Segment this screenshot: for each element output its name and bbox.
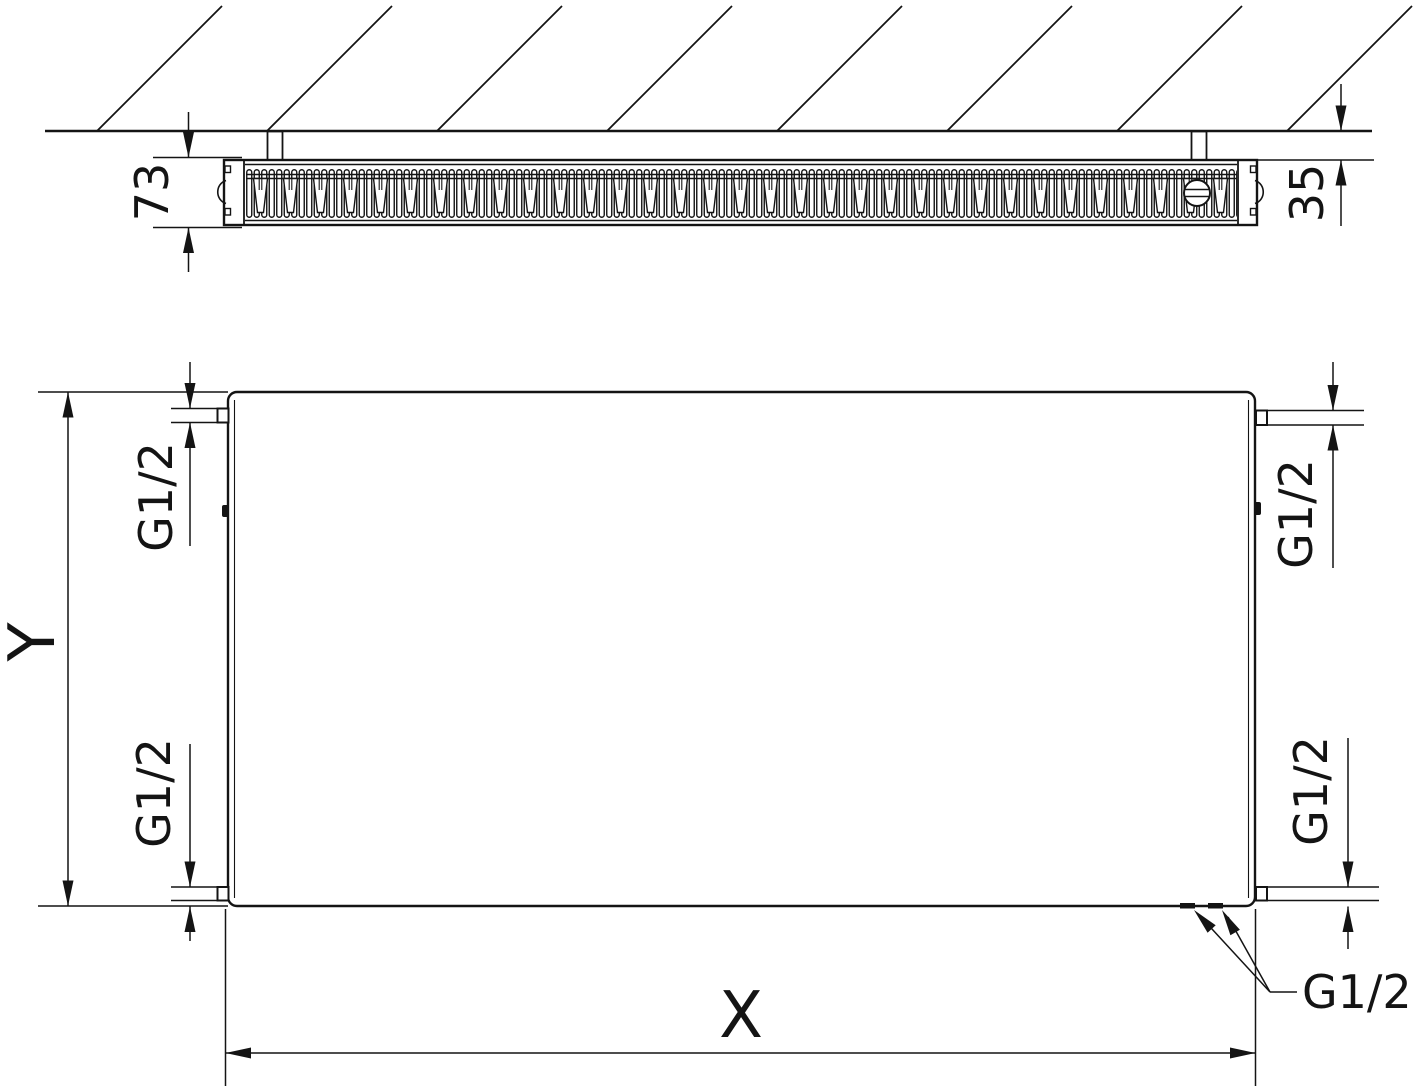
dimension-wall-distance-35: 35 [1258,84,1374,226]
thread-label-bottom-right: G1/2 [1284,736,1338,846]
dimension-thread-top-right: G1/2 [1269,362,1339,569]
mounting-bracket-left [268,132,283,162]
leader-thread-bottom: G1/2 [1180,903,1412,1019]
height-label: Y [0,622,70,663]
pipe-stub-bottom-right [1256,887,1267,901]
pipe-stub-top-left [218,409,229,423]
thread-label-top-left: G1/2 [129,442,183,552]
wall-hatching [97,6,1412,131]
pipe-stub-top-right [1256,411,1267,426]
radiator-front-view [222,392,1261,906]
dimension-thread-bottom-right: G1/2 [1284,736,1354,949]
wall-distance-label: 35 [1280,164,1334,223]
thread-label-bottom-left: G1/2 [127,738,181,848]
pipe-stub-bottom-left [218,887,229,901]
radiator-top-view [218,160,1264,225]
thread-label-top-right: G1/2 [1269,459,1323,569]
width-label: X [719,979,763,1053]
dimension-thread-bottom-left: G1/2 [127,738,196,941]
valve-insert [1184,180,1210,206]
technical-drawing: 73 35 [0,0,1425,1089]
dimension-height-y: Y [0,392,228,906]
front-panel-outline [228,392,1255,906]
seam-mark-left [222,505,229,517]
thread-label-bottom-center: G1/2 [1302,965,1412,1019]
seam-mark-right [1254,502,1261,515]
mounting-bracket-right [1192,132,1207,162]
depth-label: 73 [125,163,179,222]
convector-fins [246,169,1237,218]
dimension-thread-top-left: G1/2 [129,362,196,552]
dimension-width-x: X [226,909,1256,1086]
